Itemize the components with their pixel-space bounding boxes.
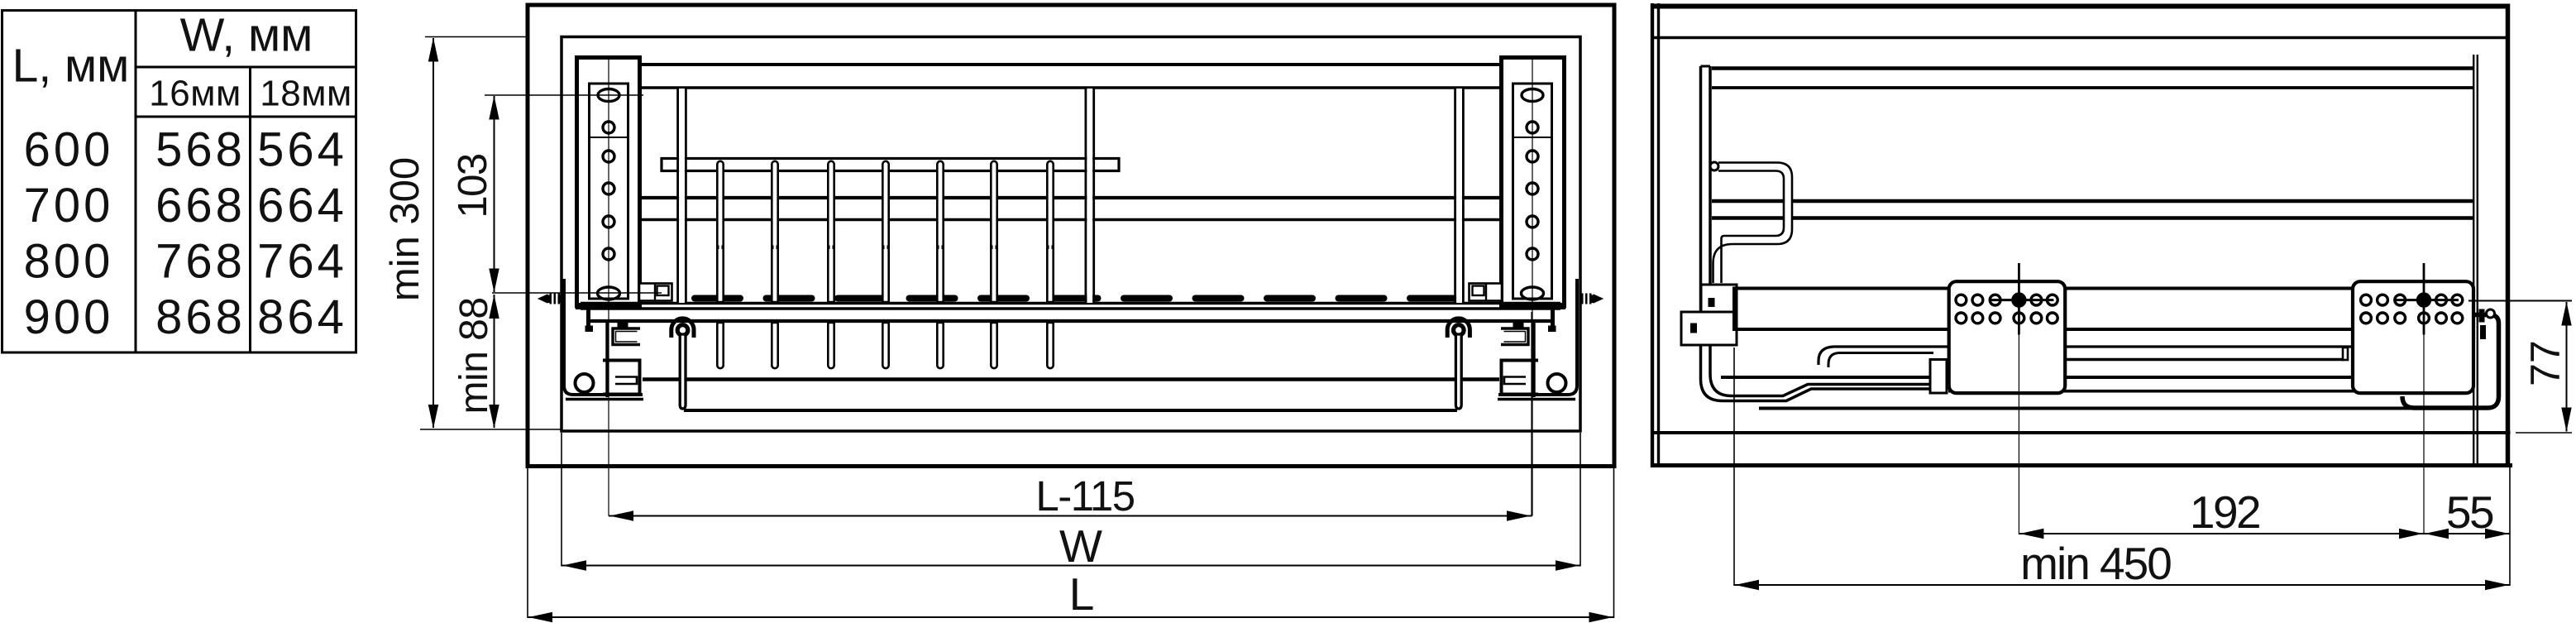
svg-text:600: 600: [24, 123, 114, 177]
svg-text:L-115: L-115: [1035, 472, 1134, 520]
svg-text:868: 868: [155, 290, 246, 344]
svg-text:min 300: min 300: [383, 157, 428, 301]
svg-text:L: L: [1069, 568, 1095, 620]
svg-text:W: W: [1059, 520, 1102, 572]
svg-text:568: 568: [155, 123, 246, 177]
svg-text:55: 55: [2446, 486, 2493, 538]
svg-text:192: 192: [2190, 486, 2259, 538]
svg-text:768: 768: [155, 235, 246, 289]
svg-text:103: 103: [451, 154, 495, 218]
svg-text:77: 77: [2522, 340, 2569, 386]
svg-text:min 88: min 88: [452, 297, 496, 414]
svg-text:16мм: 16мм: [149, 74, 241, 114]
svg-text:664: 664: [257, 179, 347, 232]
svg-text:668: 668: [155, 179, 246, 232]
svg-text:800: 800: [24, 235, 114, 289]
svg-text:564: 564: [257, 123, 347, 177]
svg-text:18мм: 18мм: [260, 74, 351, 114]
svg-text:900: 900: [24, 290, 114, 344]
svg-text:864: 864: [257, 290, 347, 344]
svg-text:W, мм: W, мм: [180, 9, 313, 62]
svg-text:min 450: min 450: [2020, 538, 2171, 589]
svg-text:L, мм: L, мм: [12, 40, 130, 93]
svg-text:764: 764: [257, 235, 347, 289]
svg-text:700: 700: [24, 179, 114, 232]
